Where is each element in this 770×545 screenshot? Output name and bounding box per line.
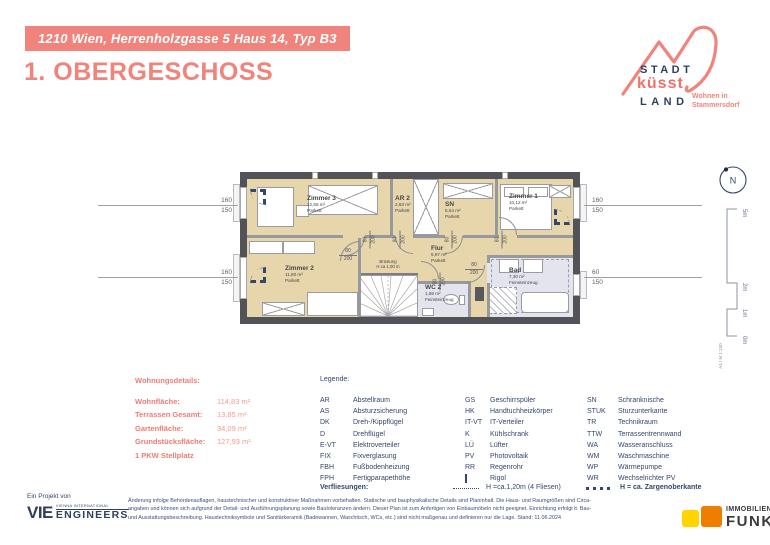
stair-treads [359,276,417,316]
dim-right-top: 160 150 [584,197,702,214]
legend-item: WMWaschmaschine [587,453,765,464]
disclaimer: Änderung infolge Behördenauflagen, haust… [128,497,680,522]
vie-abbr: VIE [27,504,53,521]
room-label-sn: SN 5,54 m² Parkett [445,201,461,219]
door-size-label: 80200 [465,263,483,276]
legend-item: FIXFixverglasung [320,453,465,464]
bathtub-bad [521,292,569,313]
legend: Legende: ARAbstellraum ASAbsturzsicherun… [320,376,768,487]
window-left-top [240,187,247,219]
scale-0m: 0m [741,336,747,344]
wall [247,235,343,238]
stair-railing [358,273,418,275]
compass-n-label: N [730,176,737,186]
door-size-label: 80200 [446,231,459,249]
toilet-tank [459,295,465,305]
logo-kuesst: küsst [637,75,684,93]
legend-item: ASAbsturzsicherung [320,408,465,419]
legend-item: PVPhotovoltaik [465,453,587,464]
detail-row: Gartenfläche: 34,09 m² [135,424,330,437]
wardrobe-zimmer2 [262,302,305,316]
detail-row: Terrassen Gesamt: 13,85 m² [135,410,330,423]
room-label-flur: Flur 5,97 m² Parkett [431,245,447,263]
legend-item: RRRegenrohr [465,464,587,475]
window-right-bottom [573,274,580,296]
legend-item: TTWTerrassentrennwand [587,431,765,442]
dashed-square-symbol [586,487,614,490]
legend-item: SNSchranknische [587,397,765,408]
window-left-bottom [240,257,247,299]
scale-5m: 5m [741,209,747,217]
staircase [358,275,418,317]
funk-line1: IMMOBILIEN [726,506,770,513]
dim-line [584,277,702,278]
legend-item: DKDreh-/Kippflügel [320,419,465,430]
address-text: 1210 Wien, Herrenholzgasse 5 Haus 14, Ty… [38,31,337,46]
window-swing-arc [554,209,570,225]
scale-2m: 2m [741,283,747,291]
legend-item: TRTechnikraum [587,419,765,430]
cabinet-zimmer2 [249,241,283,254]
rigol-icon [465,474,467,483]
detail-row: Wohnfläche: 114,83 m² [135,397,330,410]
dim-line [98,277,238,278]
door-size-label: 80200 [496,231,509,249]
wall-opening [502,172,508,179]
bed-zimmer2 [307,292,358,316]
legend-item: FBHFußbodenheizung [320,464,465,475]
dim-line [98,205,238,206]
apartment-details: Wohnungsdetails: Wohnfläche: 114,83 m² T… [135,376,330,464]
wall [390,179,393,235]
wall-opening [312,172,318,179]
page-title: 1. OBERGESCHOSS [24,58,273,87]
vie-engineers-logo: VIE VIENNA INTERNATIONAL ENGINEERS [27,504,129,521]
sink-wc2 [422,308,434,316]
legend-item: DDrehflügel [320,431,465,442]
address-banner: 1210 Wien, Herrenholzgasse 5 Haus 14, Ty… [25,26,350,51]
detail-note: 1 PKW Stellplatz [135,451,330,464]
wall [413,235,445,238]
logo-land: LAND [640,96,689,108]
window-swing-arc [250,189,266,205]
legend-item: IT-VTIT-Verteiler [465,419,587,430]
closet-sn [443,183,493,199]
scale-bar: 5m 2m 1m 0m [707,196,763,346]
stair-parapet-note: Brüstung H ca 1,00 m [359,259,417,269]
project-label: Ein Projekt von [27,493,71,500]
door-size-label: 80200 [364,231,377,249]
tiling-label: Verfliesungen: [320,484,368,491]
funk-yellow-square-icon [682,510,699,527]
shaft [413,179,439,235]
wall [487,255,490,263]
tiling-note: Verfliesungen: H =ca.1,20m (4 Fliesen) H… [320,484,768,496]
wall [468,281,471,317]
logo-tagline: Wohnen in Stammersdorf [692,92,739,110]
funk-line2: FUNK [726,513,770,530]
door-size-label: 80200 [394,231,407,249]
legend-item: WPWärmepumpe [587,464,765,475]
window-swing-arc [250,267,266,283]
legend-column-2: GSGeschirrspüler HKHandtuchheizkörper IT… [465,397,587,487]
room-label-zimmer1: Zimmer 1 10,12 m² Parkett [509,193,538,211]
room-label-zimmer3: Zimmer 3 12,55 m² Parkett [307,195,336,213]
legend-item: WAWasseranschluss [587,442,765,453]
legend-item: STUKSturzunterkante [587,408,765,419]
room-label-zimmer2: Zimmer 2 11,80 m² Parkett [285,265,314,283]
vie-line2: ENGINEERS [56,510,129,521]
room-label-ar2: AR 2 2,83 m² Parkett [395,195,411,213]
legend-title: Legende: [320,376,768,383]
dim-left-top: 160 150 [98,197,238,214]
legend-item: KKühlschrank [465,431,587,442]
legend-item: LÜLüfter [465,442,587,453]
north-compass-icon: N [713,160,753,200]
legend-column-1: ARAbstellraum ASAbsturzsicherung DKDreh-… [320,397,465,487]
dim-right-bottom: 60 150 [584,269,702,286]
wall-opening [372,172,378,179]
wall [517,235,573,238]
legend-item: ARAbstellraum [320,397,465,408]
details-title: Wohnungsdetails: [135,376,330,385]
immobilien-funk-logo: IMMOBILIEN FUNK [682,502,768,536]
stadt-kuesst-land-logo: STADT küsst LAND Wohnen in Stammersdorf [615,22,765,122]
room-label-bad: Bad 7,30 m² Feinsteinzeug [509,267,538,285]
room-label-wc2: WC 2 1,88 m² Feinsteinzeug [425,284,454,302]
duct [475,287,484,301]
detail-row: Grundstücksfläche: 127,93 m² [135,437,330,450]
window-right-top [573,187,580,219]
dim-line [584,205,702,206]
legend-column-3: SNSchranknische STUKSturzunterkante TRTe… [587,397,765,487]
floor-plan: 80200 80200 80200 80200 80200 80200 8020… [240,172,580,324]
legend-item: E-VTElektroverteiler [320,442,465,453]
wardrobe-zimmer1 [549,185,571,198]
dim-left-bottom: 160 150 [98,269,238,286]
cabinet-zimmer2 [283,241,315,254]
legend-item: GSGeschirrspüler [465,397,587,408]
scale-1m: 1m [741,309,747,317]
floor-plan-sheet: { "header": { "banner": "1210 Wien, Herr… [0,0,770,545]
dotted-line-symbol [453,488,479,489]
legend-item: HKHandtuchheizkörper [465,408,587,419]
funk-orange-square-icon [701,506,722,527]
wall [487,255,573,258]
door-size-label: 80200 [339,249,357,262]
shower-bad [489,287,517,314]
wall [487,283,490,317]
wall [495,179,498,235]
